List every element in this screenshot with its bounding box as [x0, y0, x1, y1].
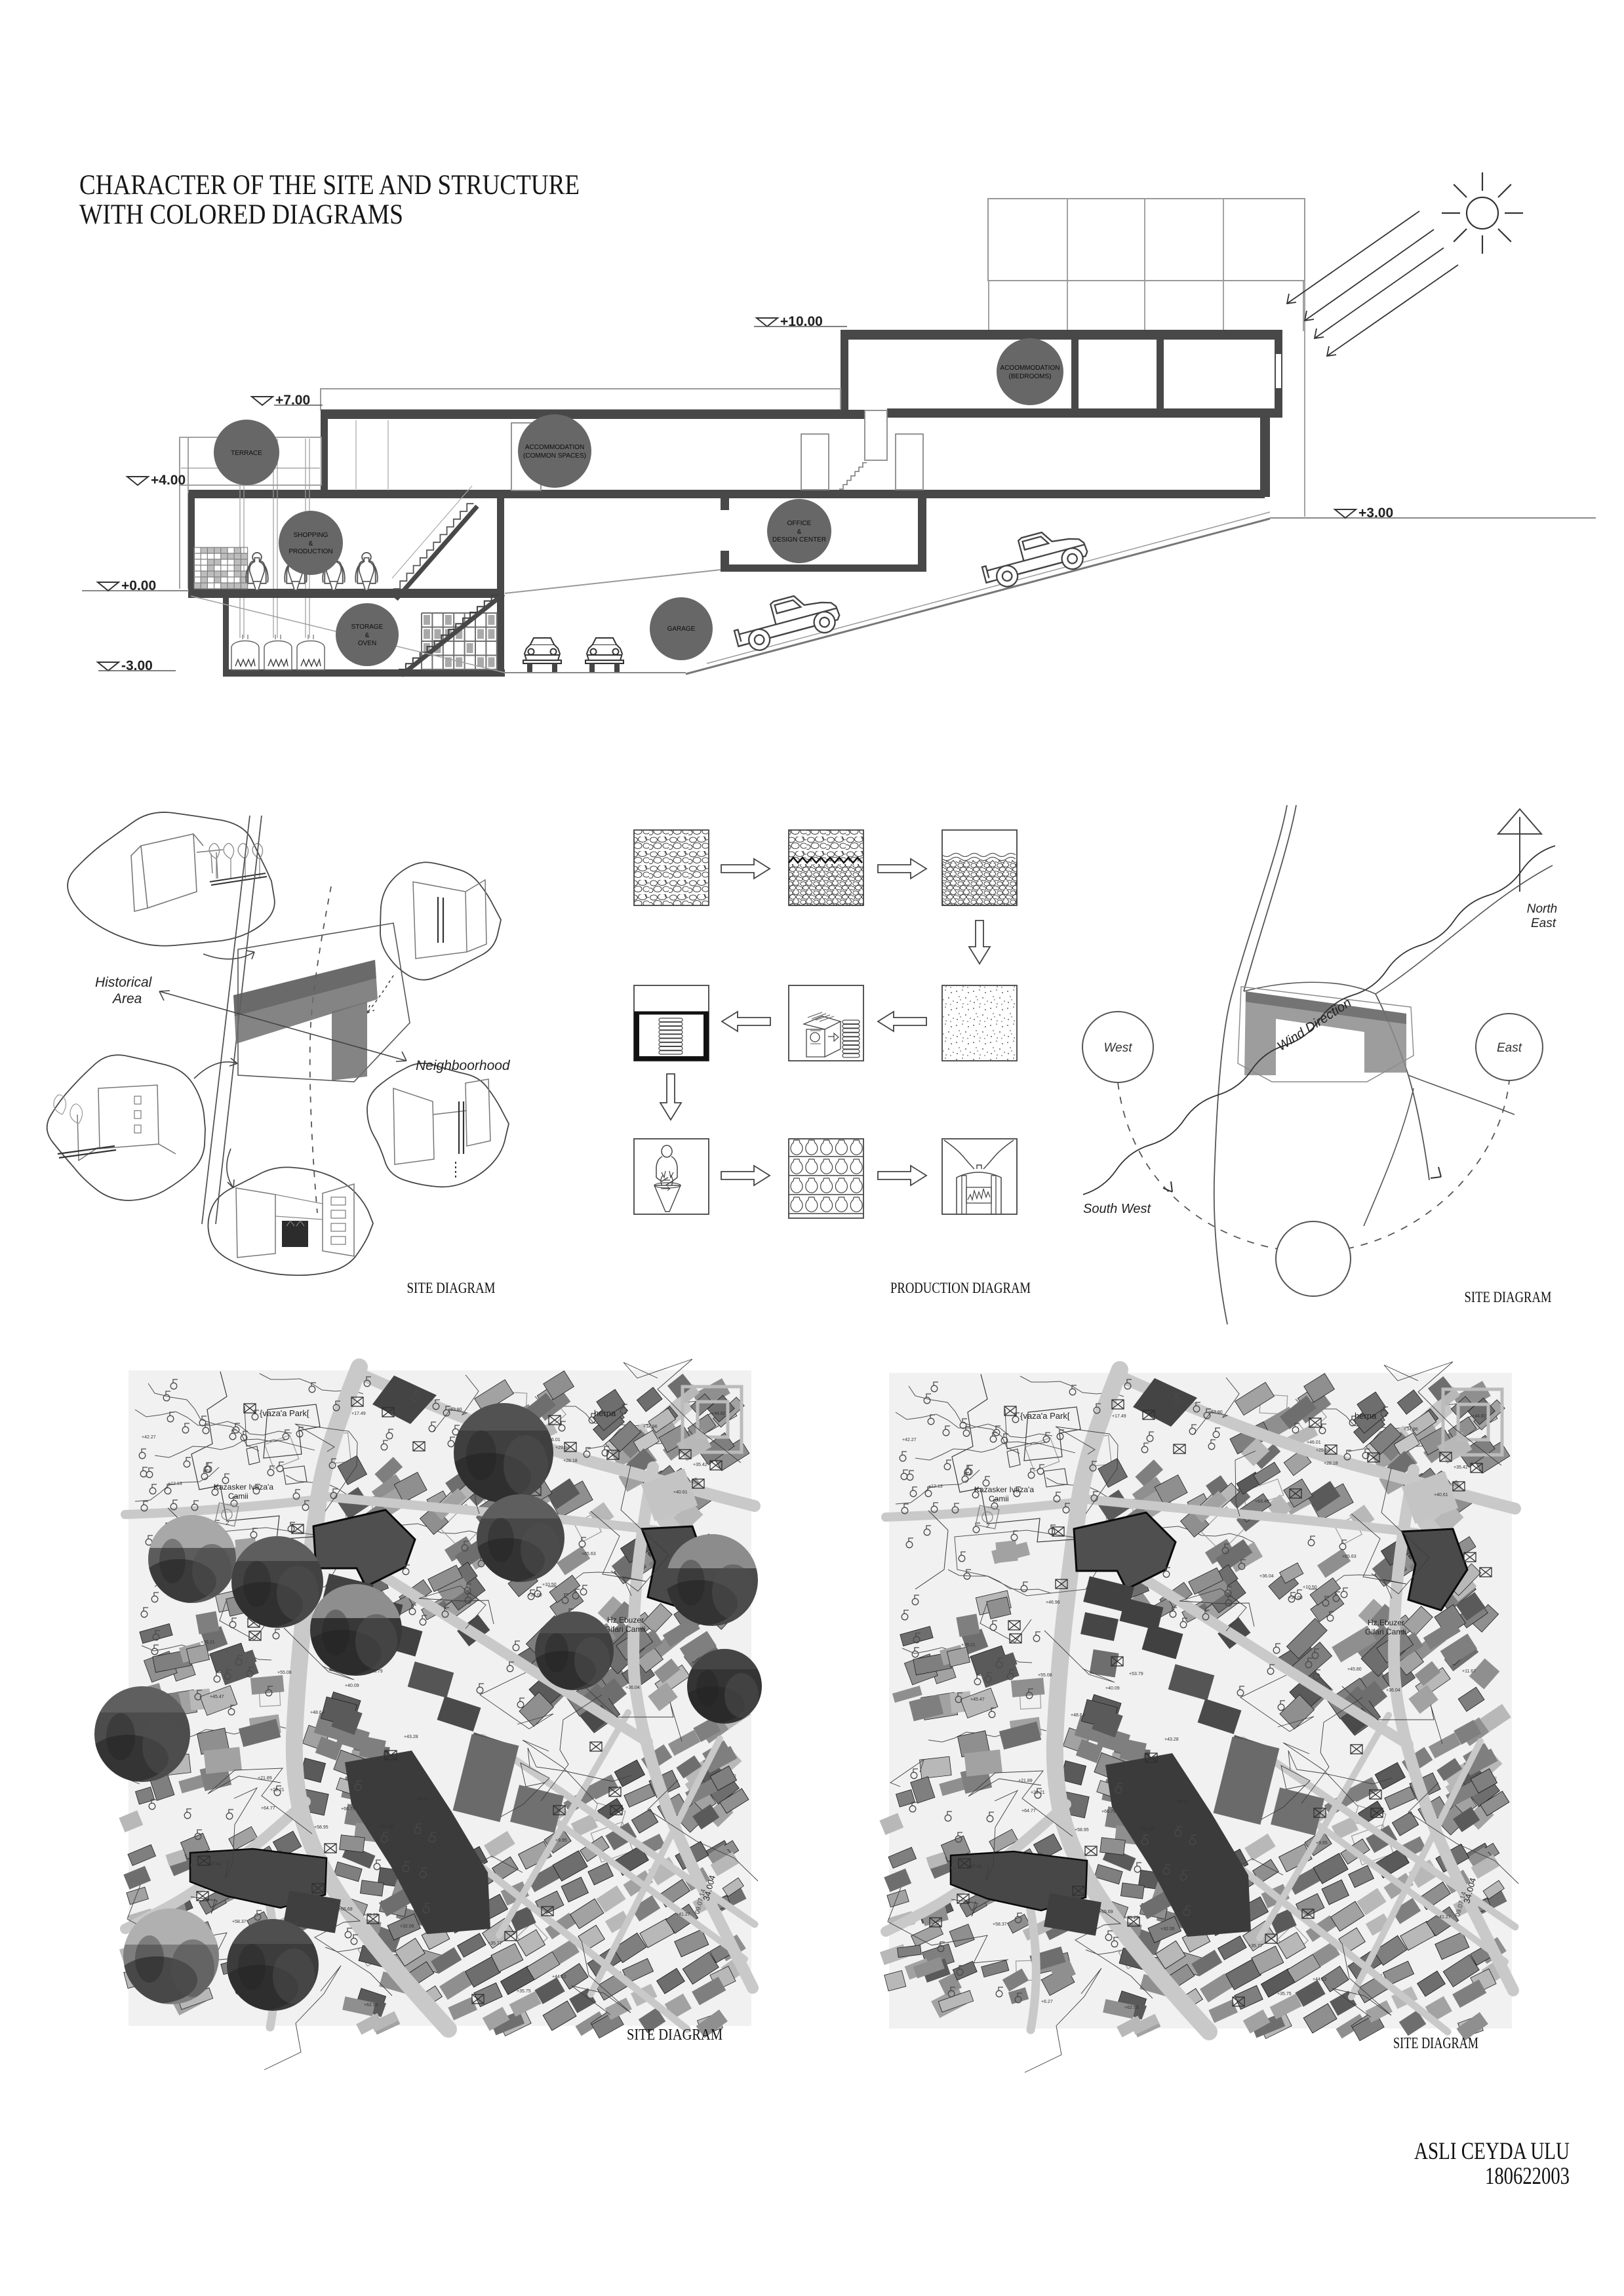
svg-text:North: North [1527, 902, 1557, 916]
svg-text:Historical: Historical [95, 975, 153, 990]
svg-text:South West: South West [1083, 1202, 1151, 1216]
svg-text:WITH COLORED DIAGRAMS: WITH COLORED DIAGRAMS [79, 199, 403, 230]
svg-text:&: & [309, 540, 313, 547]
svg-text:+3.00: +3.00 [1358, 505, 1393, 521]
svg-text:East: East [1497, 1041, 1522, 1055]
svg-text:SHOPPING: SHOPPING [294, 532, 328, 539]
svg-text:(COMMON SPACES): (COMMON SPACES) [523, 452, 586, 460]
svg-text:SITE DIAGRAM: SITE DIAGRAM [1465, 1289, 1552, 1305]
svg-text:PRODUCTION: PRODUCTION [288, 548, 332, 555]
svg-text:PRODUCTION DIAGRAM: PRODUCTION DIAGRAM [890, 1280, 1031, 1296]
svg-text:GARAGE: GARAGE [667, 625, 696, 633]
svg-text:&: & [365, 632, 370, 639]
svg-text:(BEDROOMS): (BEDROOMS) [1009, 373, 1052, 380]
svg-text:ACOOMMODATION: ACOOMMODATION [1000, 365, 1060, 372]
svg-text:ASLI CEYDA ULU: ASLI CEYDA ULU [1414, 2138, 1570, 2165]
svg-text:TERRACE: TERRACE [231, 450, 262, 457]
svg-text:Area: Area [111, 991, 142, 1006]
svg-text:OFFICE: OFFICE [787, 520, 812, 527]
svg-text:&: & [797, 528, 802, 536]
svg-text:ACCOMMODATION: ACCOMMODATION [525, 444, 584, 451]
svg-text:STORAGE: STORAGE [351, 623, 384, 631]
svg-text:OVEN: OVEN [358, 640, 376, 647]
svg-text:SITE DIAGRAM: SITE DIAGRAM [1393, 2035, 1478, 2052]
svg-text:+4.00: +4.00 [151, 473, 186, 488]
svg-text:Neighboorhood: Neighboorhood [416, 1058, 511, 1073]
svg-text:SITE DIAGRAM: SITE DIAGRAM [407, 1280, 496, 1296]
svg-text:West: West [1104, 1041, 1133, 1055]
svg-text:180622003: 180622003 [1485, 2163, 1570, 2190]
svg-text:CHARACTER OF THE SITE AND STRU: CHARACTER OF THE SITE AND STRUCTURE [79, 170, 580, 201]
svg-text:+0.00: +0.00 [121, 578, 156, 593]
svg-text:SITE DIAGRAM: SITE DIAGRAM [627, 2027, 723, 2044]
svg-text:East: East [1531, 917, 1556, 930]
svg-text:DESIGN CENTER: DESIGN CENTER [772, 536, 826, 544]
